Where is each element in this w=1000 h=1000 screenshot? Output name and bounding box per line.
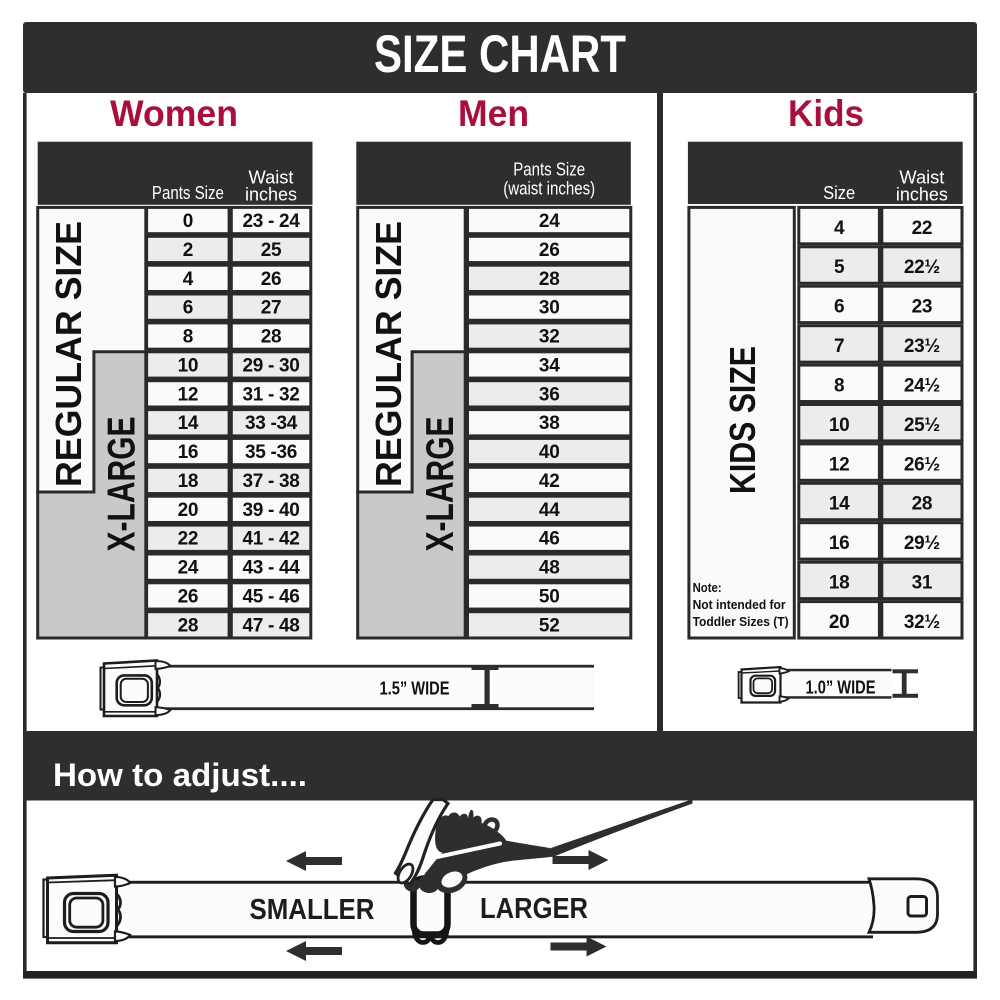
svg-text:26: 26 bbox=[261, 269, 282, 290]
svg-text:50: 50 bbox=[539, 587, 560, 608]
svg-text:23: 23 bbox=[912, 297, 933, 318]
svg-text:REGULAR SIZE: REGULAR SIZE bbox=[368, 221, 409, 487]
svg-text:Women: Women bbox=[110, 93, 238, 134]
svg-text:40: 40 bbox=[539, 442, 560, 463]
svg-text:1.0” WIDE: 1.0” WIDE bbox=[806, 677, 876, 698]
svg-text:4: 4 bbox=[834, 218, 845, 239]
svg-text:24½: 24½ bbox=[904, 376, 940, 397]
svg-text:33 -34: 33 -34 bbox=[245, 413, 298, 434]
svg-text:23 - 24: 23 - 24 bbox=[242, 211, 300, 232]
svg-text:32: 32 bbox=[539, 327, 560, 348]
svg-text:X-LARGE: X-LARGE bbox=[101, 417, 144, 552]
svg-text:X-LARGE: X-LARGE bbox=[419, 417, 462, 552]
svg-text:6: 6 bbox=[834, 297, 844, 318]
svg-text:20: 20 bbox=[178, 500, 199, 521]
svg-text:inches: inches bbox=[245, 185, 297, 205]
svg-text:12: 12 bbox=[829, 454, 850, 475]
svg-text:2: 2 bbox=[183, 240, 193, 261]
svg-text:16: 16 bbox=[829, 533, 850, 554]
svg-text:24: 24 bbox=[539, 211, 560, 232]
svg-text:27: 27 bbox=[261, 298, 282, 319]
svg-text:36: 36 bbox=[539, 384, 560, 405]
svg-text:48: 48 bbox=[539, 558, 560, 579]
svg-text:Not intended for: Not intended for bbox=[693, 597, 786, 612]
svg-text:Pants Size: Pants Size bbox=[513, 160, 585, 180]
svg-text:10: 10 bbox=[829, 415, 850, 436]
svg-text:28: 28 bbox=[261, 327, 282, 348]
svg-text:23½: 23½ bbox=[904, 336, 940, 357]
svg-text:Kids: Kids bbox=[788, 93, 864, 134]
svg-text:24: 24 bbox=[178, 558, 199, 579]
svg-text:37 - 38: 37 - 38 bbox=[242, 471, 299, 492]
svg-text:12: 12 bbox=[178, 384, 199, 405]
svg-text:32½: 32½ bbox=[904, 612, 940, 633]
svg-text:29 - 30: 29 - 30 bbox=[242, 355, 299, 376]
svg-text:41 - 42: 41 - 42 bbox=[242, 529, 299, 550]
svg-text:26: 26 bbox=[178, 587, 199, 608]
svg-text:7: 7 bbox=[834, 336, 844, 357]
svg-text:52: 52 bbox=[539, 615, 560, 636]
svg-text:KIDS SIZE: KIDS SIZE bbox=[722, 346, 763, 494]
svg-text:20: 20 bbox=[829, 612, 850, 633]
svg-text:35 -36: 35 -36 bbox=[245, 442, 297, 463]
svg-text:4: 4 bbox=[183, 269, 194, 290]
svg-text:14: 14 bbox=[178, 413, 199, 434]
svg-text:31: 31 bbox=[912, 573, 933, 594]
svg-text:How to adjust....: How to adjust.... bbox=[53, 757, 307, 793]
svg-text:43 - 44: 43 - 44 bbox=[242, 558, 300, 579]
svg-text:38: 38 bbox=[539, 413, 560, 434]
svg-text:30: 30 bbox=[539, 298, 560, 319]
svg-text:22½: 22½ bbox=[904, 257, 940, 278]
svg-text:34: 34 bbox=[539, 355, 560, 376]
svg-text:26½: 26½ bbox=[904, 454, 940, 475]
svg-text:22: 22 bbox=[912, 218, 933, 239]
svg-text:Toddler Sizes (T): Toddler Sizes (T) bbox=[693, 614, 789, 629]
svg-text:28: 28 bbox=[178, 615, 199, 636]
svg-text:42: 42 bbox=[539, 471, 560, 492]
svg-text:Size: Size bbox=[823, 183, 855, 203]
svg-text:6: 6 bbox=[183, 298, 193, 319]
svg-text:SMALLER: SMALLER bbox=[250, 894, 375, 926]
svg-text:LARGER: LARGER bbox=[480, 893, 588, 925]
svg-text:5: 5 bbox=[834, 257, 845, 278]
svg-text:47 - 48: 47 - 48 bbox=[242, 615, 299, 636]
svg-text:Note:: Note: bbox=[693, 580, 722, 595]
svg-text:Pants Size: Pants Size bbox=[152, 183, 224, 203]
svg-text:0: 0 bbox=[183, 211, 193, 232]
svg-text:44: 44 bbox=[539, 500, 560, 521]
svg-text:25: 25 bbox=[261, 240, 282, 261]
svg-text:Men: Men bbox=[458, 93, 529, 134]
svg-text:14: 14 bbox=[829, 494, 850, 515]
svg-text:45 - 46: 45 - 46 bbox=[242, 587, 299, 608]
svg-text:(waist inches): (waist inches) bbox=[503, 179, 595, 199]
svg-text:16: 16 bbox=[178, 442, 199, 463]
svg-text:29½: 29½ bbox=[904, 533, 940, 554]
svg-text:39 - 40: 39 - 40 bbox=[242, 500, 299, 521]
svg-text:1.5” WIDE: 1.5” WIDE bbox=[380, 678, 450, 699]
svg-text:46: 46 bbox=[539, 529, 560, 550]
svg-text:REGULAR SIZE: REGULAR SIZE bbox=[48, 221, 89, 487]
svg-text:28: 28 bbox=[912, 494, 933, 515]
svg-text:28: 28 bbox=[539, 269, 560, 290]
svg-text:26: 26 bbox=[539, 240, 560, 261]
svg-text:SIZE CHART: SIZE CHART bbox=[374, 25, 626, 84]
svg-text:8: 8 bbox=[834, 376, 844, 397]
svg-text:18: 18 bbox=[178, 471, 199, 492]
svg-text:inches: inches bbox=[896, 185, 948, 205]
svg-text:25½: 25½ bbox=[904, 415, 940, 436]
svg-text:31 - 32: 31 - 32 bbox=[242, 384, 299, 405]
svg-text:18: 18 bbox=[829, 573, 850, 594]
svg-text:22: 22 bbox=[178, 529, 199, 550]
svg-text:10: 10 bbox=[178, 355, 199, 376]
svg-text:8: 8 bbox=[183, 327, 193, 348]
